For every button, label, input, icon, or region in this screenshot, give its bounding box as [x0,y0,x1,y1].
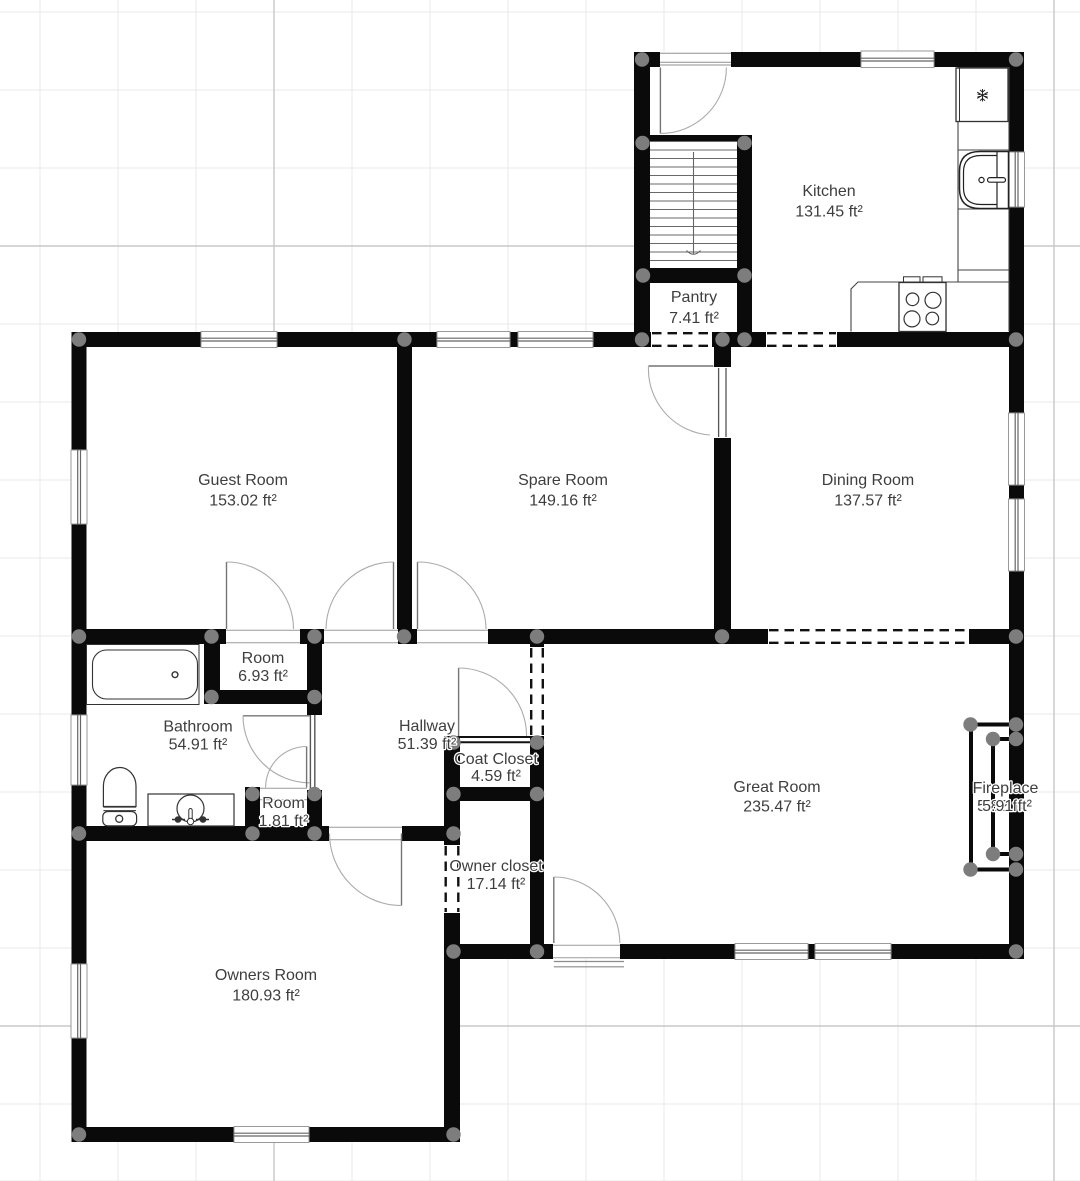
svg-text:6.93 ft²: 6.93 ft² [238,668,288,685]
svg-text:Room: Room [242,650,285,667]
svg-text:Hallway: Hallway [399,718,455,735]
svg-text:Kitchen: Kitchen [802,183,855,200]
svg-text:Great Room: Great Room [733,779,820,796]
svg-text:54.91 ft²: 54.91 ft² [169,737,228,754]
svg-text:5.91 ft²: 5.91 ft² [982,798,1032,815]
svg-text:Coat Closet: Coat Closet [454,751,538,768]
svg-text:Fireplace: Fireplace [973,780,1039,797]
svg-text:180.93 ft²: 180.93 ft² [232,988,300,1005]
svg-text:149.16 ft²: 149.16 ft² [529,493,597,510]
svg-text:Spare Room: Spare Room [518,472,608,489]
svg-text:1.81 ft²: 1.81 ft² [259,813,309,830]
svg-text:51.39 ft²: 51.39 ft² [398,736,457,753]
svg-text:17.14 ft²: 17.14 ft² [467,876,526,893]
svg-text:131.45 ft²: 131.45 ft² [795,204,863,221]
svg-text:Pantry: Pantry [671,289,717,306]
svg-text:153.02 ft²: 153.02 ft² [209,493,277,510]
svg-text:Dining Room: Dining Room [822,472,914,489]
svg-text:Guest Room: Guest Room [198,472,288,489]
svg-text:Bathroom: Bathroom [163,719,232,736]
svg-text:Owners Room: Owners Room [215,967,317,984]
svg-text:4.59 ft²: 4.59 ft² [471,768,521,785]
svg-text:Owner closet: Owner closet [449,858,543,875]
svg-text:Room: Room [262,795,305,812]
svg-text:235.47 ft²: 235.47 ft² [743,799,811,816]
svg-text:137.57 ft²: 137.57 ft² [834,493,902,510]
svg-text:7.41 ft²: 7.41 ft² [669,310,719,327]
